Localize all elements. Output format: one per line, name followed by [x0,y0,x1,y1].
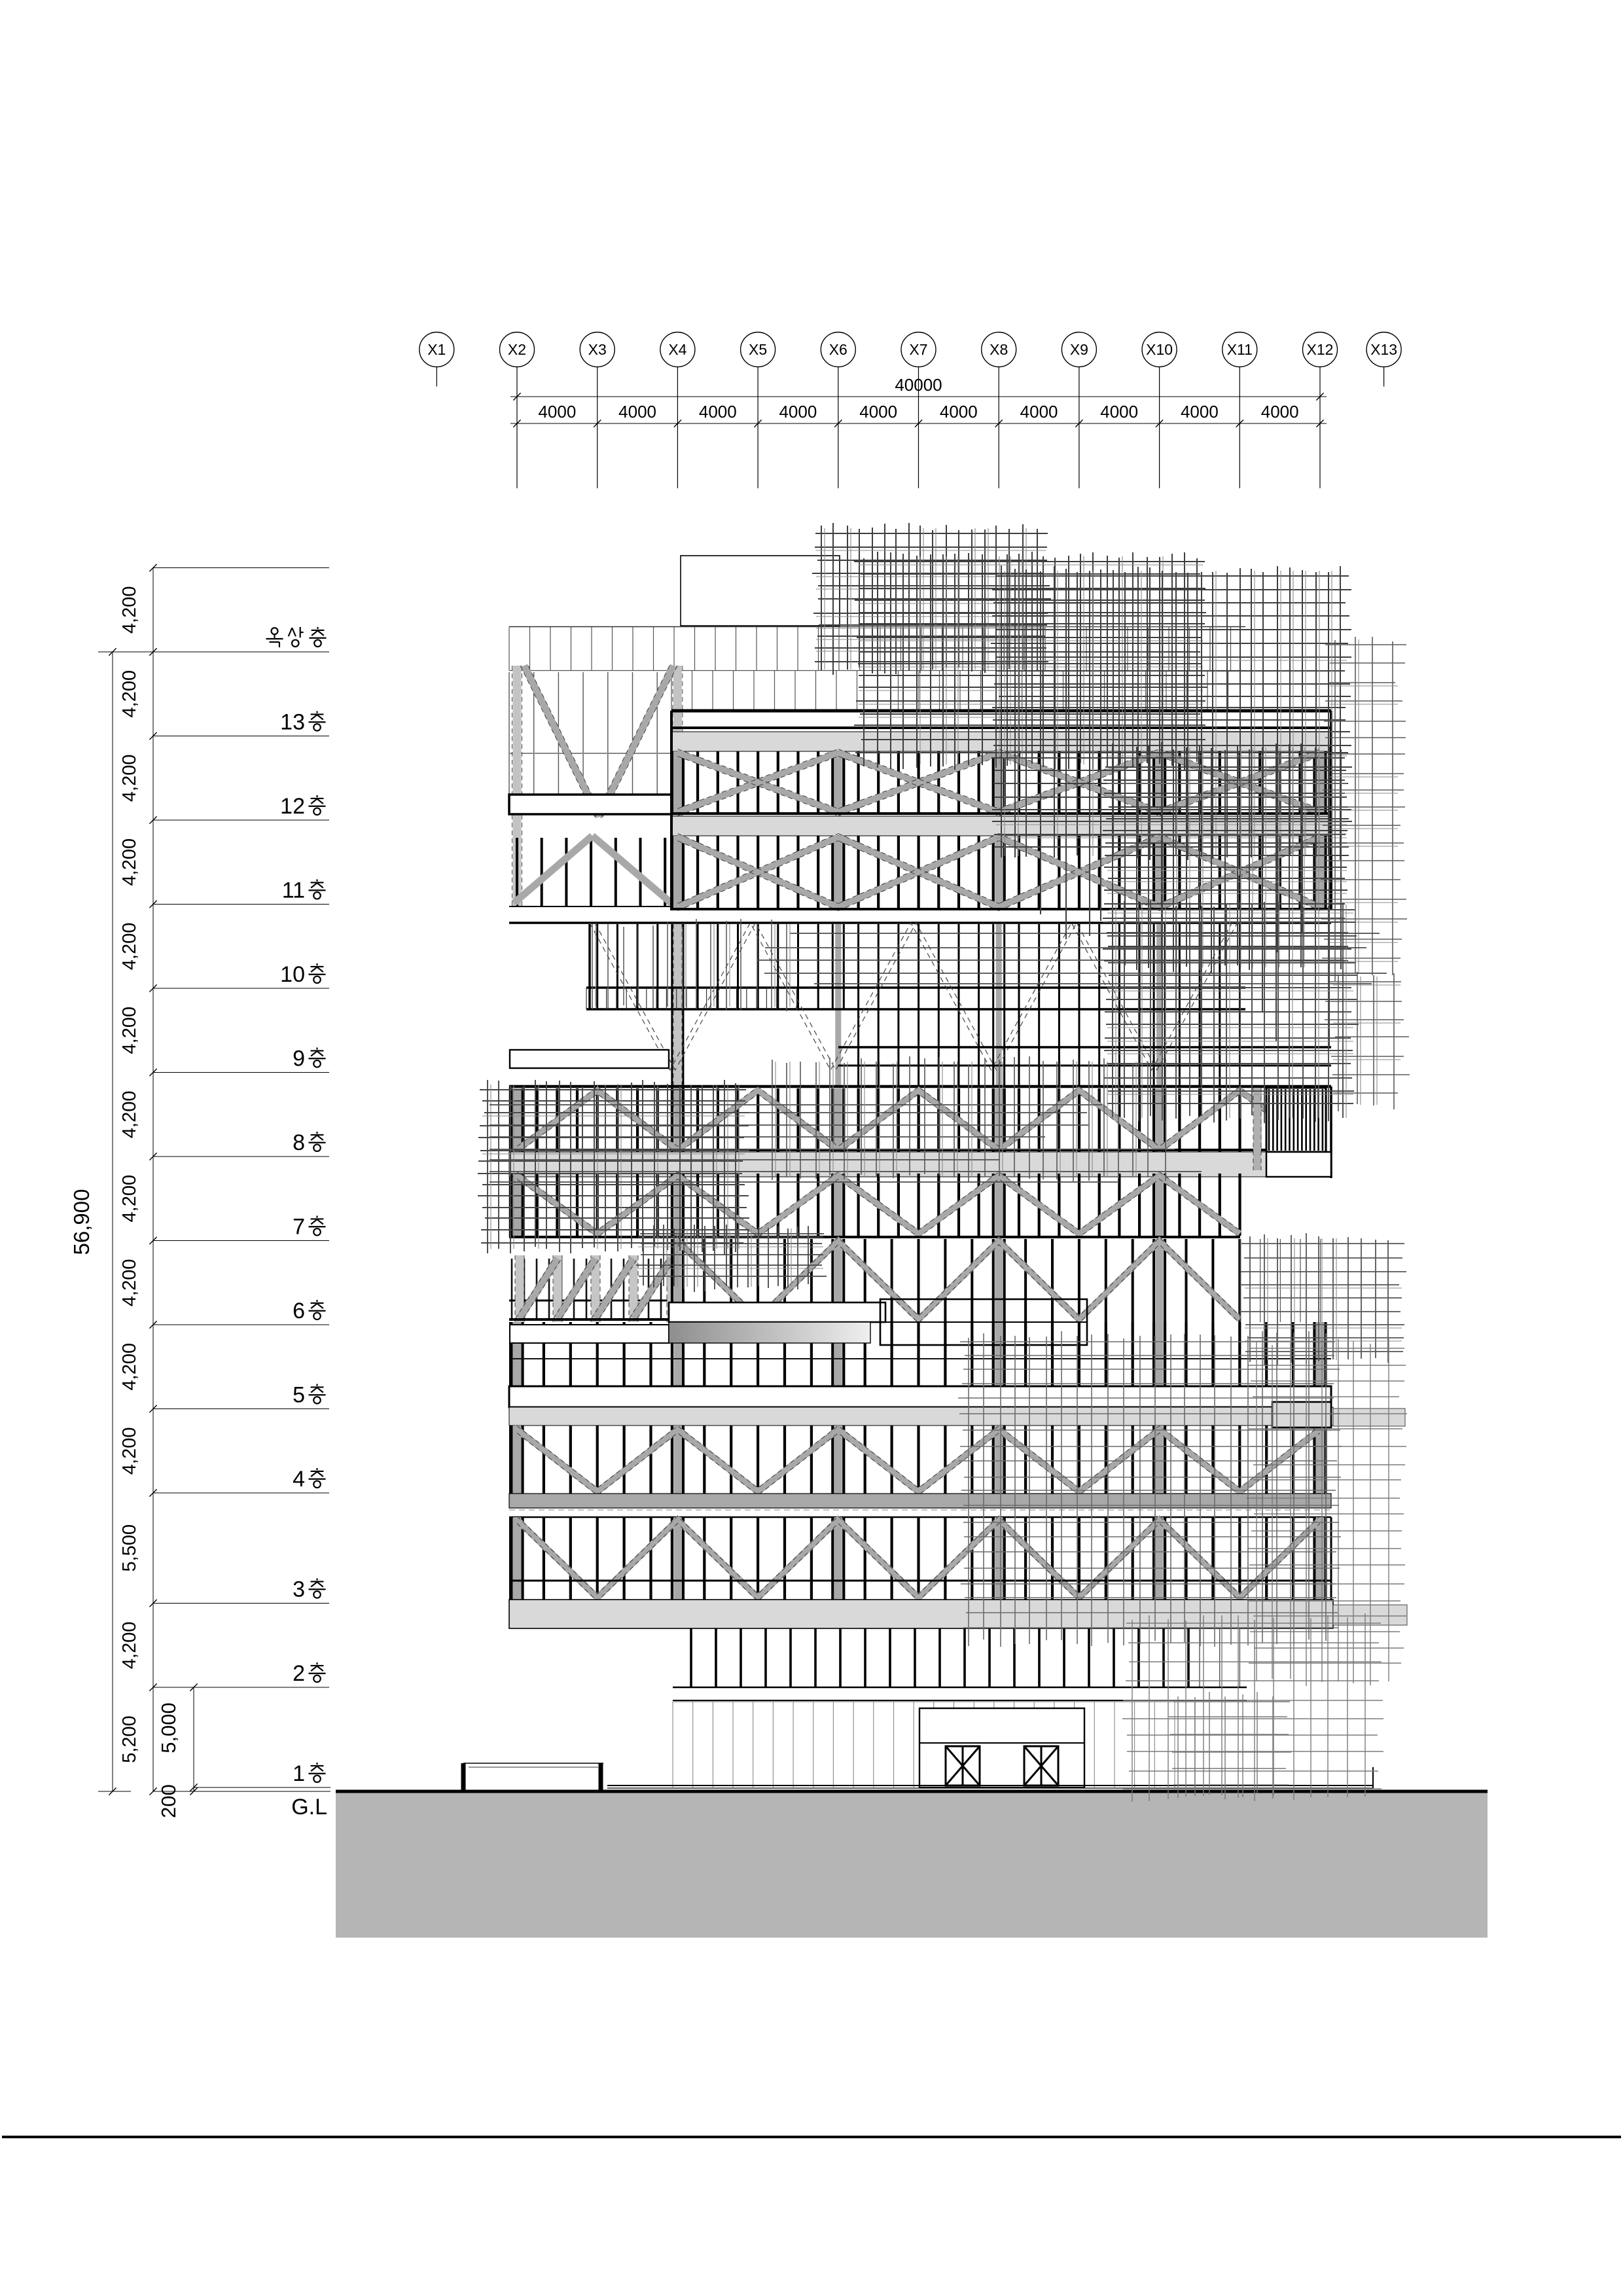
svg-text:X8: X8 [990,341,1008,358]
svg-text:4,200: 4,200 [119,1175,140,1223]
svg-text:X9: X9 [1070,341,1088,358]
svg-text:40000: 40000 [895,375,942,395]
svg-text:4000: 4000 [1181,402,1219,422]
svg-text:10: 10 [280,962,305,987]
svg-text:X13: X13 [1370,341,1397,358]
svg-text:4,200: 4,200 [119,1622,140,1670]
svg-text:4000: 4000 [779,402,817,422]
svg-text:2: 2 [293,1661,305,1686]
svg-text:4,200: 4,200 [119,1343,140,1391]
svg-text:4000: 4000 [1261,402,1299,422]
svg-text:X7: X7 [909,341,927,358]
svg-text:4000: 4000 [1020,402,1058,422]
svg-text:6: 6 [293,1299,305,1323]
svg-text:4,200: 4,200 [119,670,140,718]
svg-text:X6: X6 [829,341,847,358]
svg-text:X1: X1 [427,341,446,358]
svg-text:12: 12 [280,794,305,819]
svg-text:9: 9 [293,1047,305,1071]
svg-text:X4: X4 [668,341,687,358]
svg-text:4,200: 4,200 [119,755,140,802]
svg-text:5,000: 5,000 [157,1702,180,1753]
svg-text:4000: 4000 [618,402,656,422]
svg-text:4000: 4000 [940,402,978,422]
svg-text:X5: X5 [749,341,767,358]
svg-text:4000: 4000 [699,402,737,422]
svg-text:7: 7 [293,1215,305,1240]
svg-text:G.L: G.L [291,1795,327,1820]
svg-text:4: 4 [293,1467,305,1492]
svg-text:4,200: 4,200 [119,586,140,634]
svg-text:1: 1 [293,1761,305,1786]
svg-text:4,200: 4,200 [119,1007,140,1054]
svg-text:3: 3 [293,1577,305,1602]
svg-text:4000: 4000 [538,402,576,422]
svg-text:4,200: 4,200 [119,838,140,886]
svg-text:X10: X10 [1146,341,1173,358]
svg-text:X12: X12 [1307,341,1334,358]
svg-text:11: 11 [282,878,305,903]
svg-text:5,500: 5,500 [119,1524,140,1572]
svg-text:X11: X11 [1227,341,1253,358]
svg-text:4000: 4000 [1100,402,1138,422]
svg-text:X3: X3 [588,341,607,358]
svg-text:5,200: 5,200 [119,1715,140,1763]
svg-text:200: 200 [157,1784,180,1818]
svg-text:4,200: 4,200 [119,1259,140,1307]
svg-text:4,200: 4,200 [119,1427,140,1475]
svg-text:8: 8 [293,1130,305,1155]
svg-text:13: 13 [280,710,305,735]
svg-text:4000: 4000 [859,402,897,422]
svg-text:X2: X2 [508,341,526,358]
svg-text:4,200: 4,200 [119,1091,140,1139]
svg-text:4,200: 4,200 [119,923,140,971]
svg-text:56,900: 56,900 [69,1189,94,1255]
svg-text:5: 5 [293,1383,305,1408]
